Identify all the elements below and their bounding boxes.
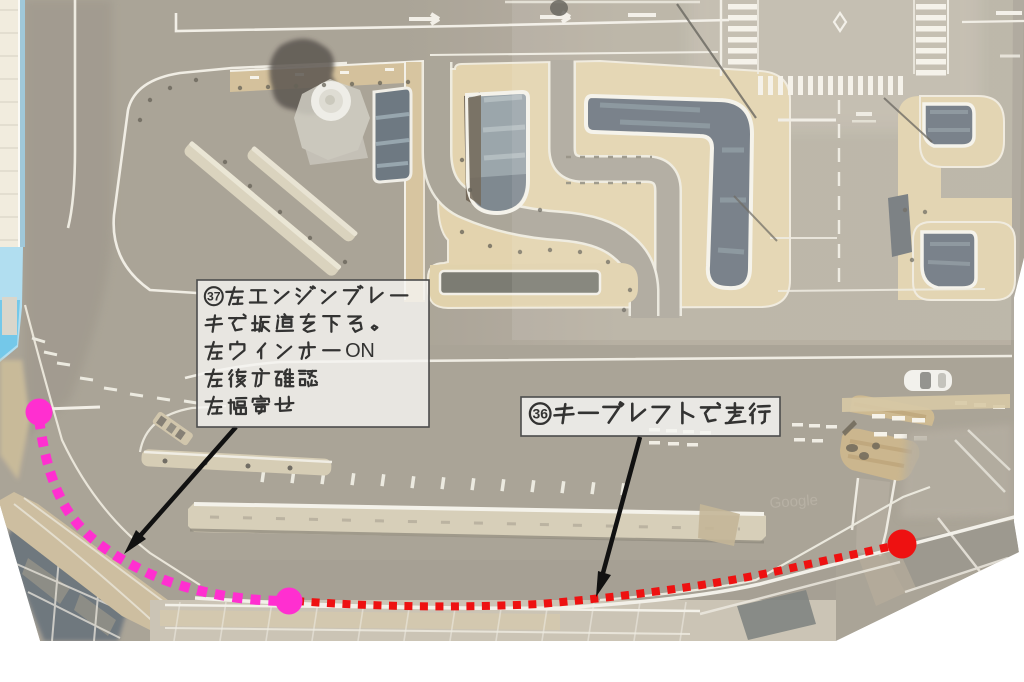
- svg-text:N: N: [360, 340, 374, 362]
- svg-text:37: 37: [207, 289, 221, 303]
- svg-text:O: O: [345, 340, 361, 362]
- svg-text:36: 36: [532, 405, 548, 421]
